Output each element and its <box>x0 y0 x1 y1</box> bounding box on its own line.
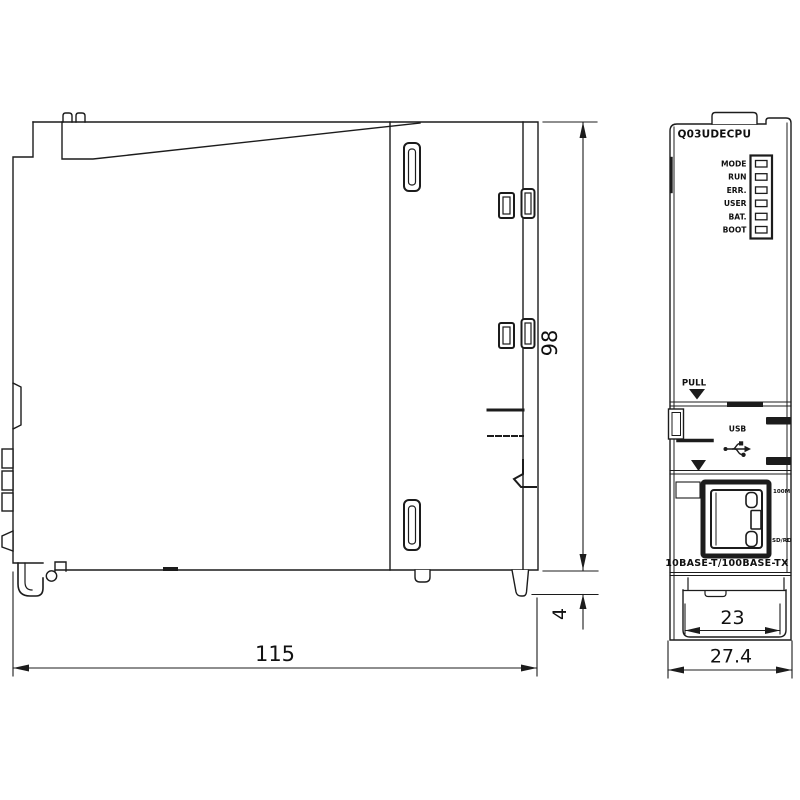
arrowhead <box>580 122 587 138</box>
arrowhead <box>580 595 587 610</box>
port-led-label-top: 100M <box>773 489 791 495</box>
arrowhead <box>580 554 587 570</box>
bottom-tab-small <box>415 570 430 582</box>
led-indicator <box>756 187 768 194</box>
dim-27-4-label: 27.4 <box>710 646 752 668</box>
led-label: USER <box>724 199 747 208</box>
corner-detail <box>676 482 700 498</box>
dimension-98: 98 <box>538 122 597 570</box>
dim-23-label: 23 <box>720 607 744 629</box>
dimension-115: 115 <box>13 572 537 676</box>
side-outline-left <box>13 122 43 563</box>
side-clip-upper <box>499 189 535 218</box>
dim-4-label: 4 <box>549 608 571 620</box>
vent-slot-top <box>404 143 420 191</box>
dim-98-label: 98 <box>538 330 562 357</box>
pointed-tab <box>2 531 13 551</box>
led-indicator <box>756 161 768 168</box>
led-label: RUN <box>728 173 746 182</box>
vent-slot-bottom <box>404 500 420 550</box>
arrowhead <box>668 667 684 674</box>
connector-tab <box>2 471 13 490</box>
mounting-hook-icon <box>63 113 85 122</box>
connector-tab <box>2 449 13 468</box>
pull-label: PULL <box>682 379 707 389</box>
led-label: BAT. <box>729 212 747 221</box>
side-view <box>2 113 538 596</box>
led-indicator <box>756 213 768 220</box>
seam-dark-segment <box>727 402 763 408</box>
top-tab <box>712 113 757 125</box>
led-indicator <box>756 174 768 181</box>
cover-latch <box>514 460 536 487</box>
marking-bar <box>766 457 791 465</box>
led-indicator <box>756 200 768 207</box>
drawing-svg: Q03UDECPU MODE RUN ERR. USER BAT. BOOT P… <box>0 0 800 800</box>
bottom-bump <box>163 567 178 571</box>
front-view: Q03UDECPU MODE RUN ERR. USER BAT. BOOT P… <box>665 113 792 641</box>
dimension-4: 4 <box>532 571 598 629</box>
model-label: Q03UDECPU <box>678 129 752 141</box>
led-label: ERR. <box>727 186 747 195</box>
side-outline <box>33 122 538 570</box>
left-edge-bump <box>13 383 21 429</box>
led-indicator <box>756 227 768 234</box>
bottom-tab-trapezoid <box>512 570 529 596</box>
arrowhead <box>521 665 537 672</box>
rj45-socket <box>711 490 762 548</box>
dim-115-label: 115 <box>255 642 295 666</box>
top-seam <box>62 122 420 159</box>
ethernet-caption: 10BASE-T/100BASE-TX <box>665 558 789 569</box>
side-slot <box>669 409 684 439</box>
connector-tab <box>2 493 13 511</box>
dimension-drawing: Q03UDECPU MODE RUN ERR. USER BAT. BOOT P… <box>0 0 800 800</box>
led-label: BOOT <box>723 226 748 235</box>
arrowhead <box>13 665 29 672</box>
dimension-27-4: 27.4 <box>668 641 792 678</box>
marking-bar <box>766 417 791 425</box>
led-label: MODE <box>721 160 747 169</box>
arrowhead <box>776 667 792 674</box>
usb-label: USB <box>729 425 747 434</box>
extension-line <box>532 571 598 595</box>
port-led-label-bottom: SD/RD <box>772 538 792 544</box>
din-rail-hook <box>18 562 66 596</box>
side-clip-lower <box>499 319 535 348</box>
